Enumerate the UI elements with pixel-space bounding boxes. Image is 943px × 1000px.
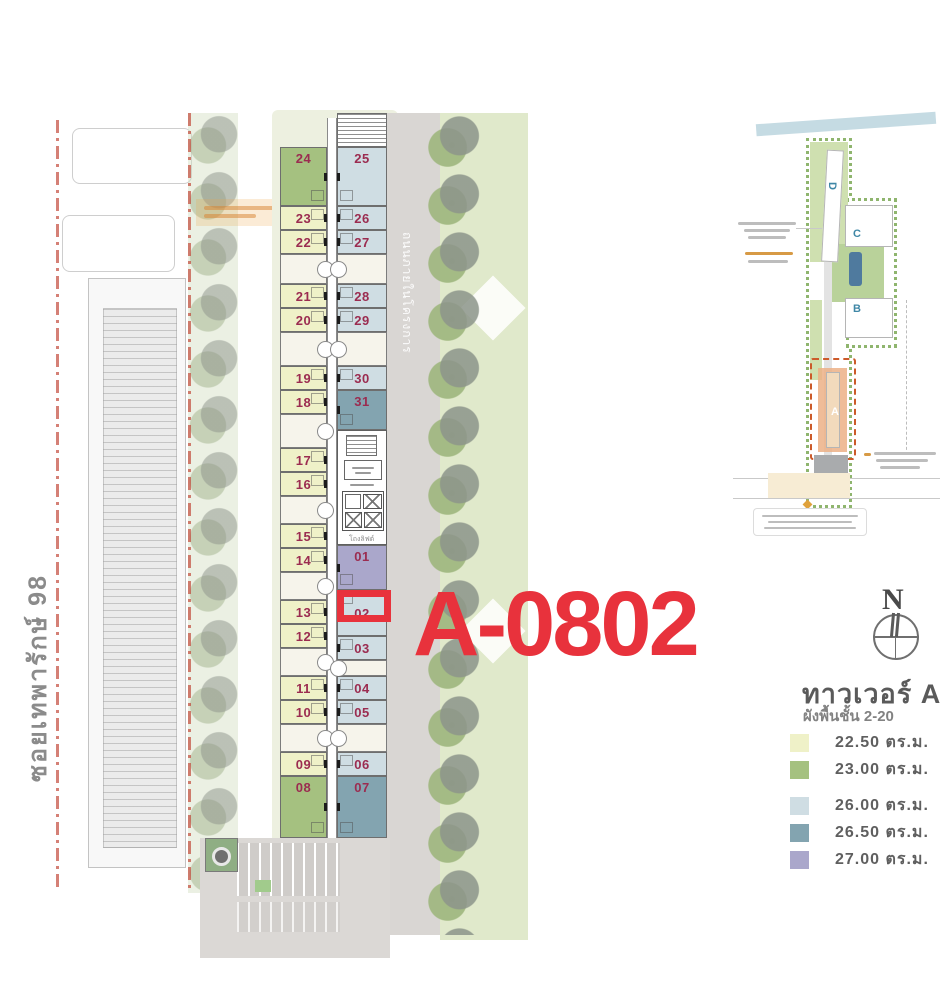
annotation-lines-orange [864, 453, 871, 456]
unit-02-highlight-box [337, 590, 391, 622]
parking-row [237, 902, 340, 932]
unit-cell-07: 07 [337, 776, 387, 838]
annotation-lines [748, 260, 788, 263]
legend-swatch [790, 761, 809, 779]
tower-d-label: D [826, 182, 838, 190]
balcony-bay [280, 332, 327, 366]
core-stairs [346, 435, 377, 456]
site-boundary-line [56, 120, 59, 888]
leader-line [796, 228, 822, 229]
unit-cell-01: 01 [337, 545, 387, 590]
compass-cross [895, 637, 896, 659]
legend-item: 27.00 ตร.ม. [790, 847, 929, 872]
legend-swatch [790, 797, 809, 815]
legend-item: 26.00 ตร.ม. [790, 793, 929, 818]
unit-cell-08: 08 [280, 776, 327, 838]
north-label: N [882, 583, 904, 617]
tree-row-right [426, 115, 480, 935]
access-road [768, 473, 850, 498]
balcony-bay [280, 572, 327, 600]
annotation-lines-orange [745, 252, 793, 255]
legend-label: 23.00 ตร.ม. [835, 757, 929, 782]
unit-cell-10: 10 [280, 700, 327, 724]
balcony-bay [280, 414, 327, 448]
canal-strip [756, 112, 936, 137]
unit-cell-20: 20 [280, 308, 327, 332]
tower-c-building [845, 205, 893, 247]
unit-code-label: A-0802 [413, 578, 697, 670]
unit-cell-04: 04 [337, 676, 387, 700]
legend-subtitle: ผังพื้นชั้น 2-20 [803, 704, 894, 728]
annotation-lines [352, 467, 374, 469]
unit-cell-03: 03 [337, 636, 387, 660]
annotation-lines [874, 452, 936, 455]
road-line [733, 498, 940, 499]
unit-cell-25: 25 [337, 147, 387, 206]
unit-cell-24: 24 [280, 147, 327, 206]
unit-cell-19: 19 [280, 366, 327, 390]
tower-b-label: B [853, 303, 861, 315]
annotation-lines [748, 236, 786, 239]
lift-bank [342, 491, 384, 531]
unit-cell-27: 27 [337, 230, 387, 254]
balcony-bay [280, 724, 327, 752]
unit-cell-12: 12 [280, 624, 327, 648]
tree-strip-left [188, 113, 238, 893]
legend-label: 22.50 ตร.ม. [835, 730, 929, 755]
legend-label: 26.00 ตร.ม. [835, 793, 929, 818]
parking-row [237, 843, 340, 896]
unit-cell-16: 16 [280, 472, 327, 496]
faded-structure-outline [62, 215, 175, 272]
unit-cell-28: 28 [337, 284, 387, 308]
stair-block-top [337, 113, 387, 147]
service-room [344, 460, 382, 480]
annotation-lines [762, 515, 858, 517]
elevator [364, 512, 382, 528]
unit-cell-29: 29 [337, 308, 387, 332]
pool [849, 252, 862, 286]
balcony-bay [280, 496, 327, 524]
annotation-lines [768, 521, 852, 523]
core-block: โถงลิฟต์ [337, 430, 387, 545]
annotation-lines [880, 466, 920, 469]
annotation-lines [350, 484, 374, 486]
balcony-bay [337, 724, 387, 752]
annotation-lines [204, 206, 280, 210]
guard-house [205, 838, 238, 872]
balcony-bay [337, 254, 387, 284]
floor-plan-image: ซอยเทพารักษ์ 98 ถนนภายในโครงการ 24 23 22… [0, 0, 943, 1000]
dimension-line [906, 300, 907, 455]
corridor [327, 118, 337, 876]
unit-cell-05: 05 [337, 700, 387, 724]
legend-swatch [790, 734, 809, 752]
internal-road-label: ถนนภายในโครงการ [397, 232, 416, 354]
unit-cell-14: 14 [280, 548, 327, 572]
balcony-bay [280, 648, 327, 676]
unit-cell-31: 31 [337, 390, 387, 430]
legend-item: 22.50 ตร.ม. [790, 730, 929, 755]
annotation-lines [744, 229, 790, 232]
adjacent-building-roof [103, 308, 177, 848]
annotation-lines [204, 214, 256, 218]
unit-cell-23: 23 [280, 206, 327, 230]
unit-cell-18: 18 [280, 390, 327, 414]
legend-label: 27.00 ตร.ม. [835, 847, 929, 872]
legend-swatch [790, 851, 809, 869]
legend-swatch [790, 824, 809, 842]
note-box [753, 508, 867, 536]
planter [255, 880, 271, 892]
unit-cell-11: 11 [280, 676, 327, 700]
unit-cell-30: 30 [337, 366, 387, 390]
site-boundary-line [188, 113, 191, 893]
street-name-label: ซอยเทพารักษ์ 98 [18, 574, 58, 782]
service-room [345, 494, 361, 509]
elevator [363, 494, 382, 509]
unit-cell-21: 21 [280, 284, 327, 308]
legend-item: 26.50 ตร.ม. [790, 820, 929, 845]
unit-cell-15: 15 [280, 524, 327, 548]
unit-cell-26: 26 [337, 206, 387, 230]
unit-cell-22: 22 [280, 230, 327, 254]
tower-a-label: A [831, 406, 839, 418]
balcony-bay [280, 254, 327, 284]
unit-cell-06: 06 [337, 752, 387, 776]
balcony-bay [337, 660, 387, 676]
unit-cell-09: 09 [280, 752, 327, 776]
tower-c-label: C [853, 228, 861, 240]
annotation-lines [738, 222, 796, 225]
legend-item: 23.00 ตร.ม. [790, 757, 929, 782]
annotation-lines [764, 527, 856, 529]
legend-label: 26.50 ตร.ม. [835, 820, 929, 845]
annotation-lines [355, 472, 371, 474]
lift-hall-label: โถงลิฟต์ [349, 534, 374, 545]
unit-cell-17: 17 [280, 448, 327, 472]
unit-cell-13: 13 [280, 600, 327, 624]
faded-structure-outline [72, 128, 192, 184]
annotation-lines [876, 459, 928, 462]
balcony-bay [337, 332, 387, 366]
entrance-structure [814, 455, 848, 473]
elevator [345, 512, 362, 528]
